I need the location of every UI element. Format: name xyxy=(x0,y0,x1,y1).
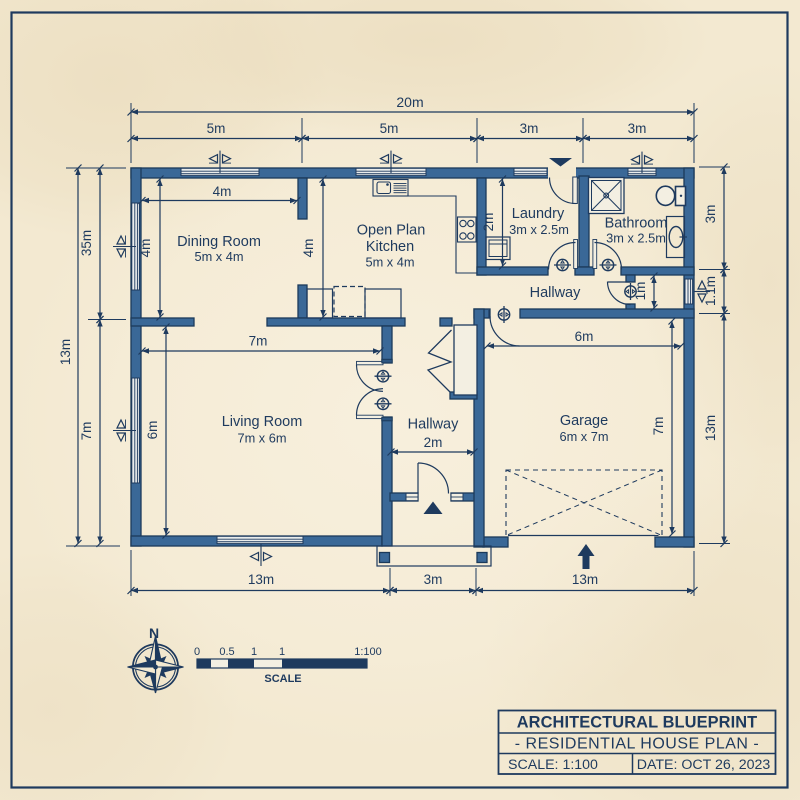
svg-text:DATE: OCT 26, 2023: DATE: OCT 26, 2023 xyxy=(637,757,771,773)
svg-text:3m x 2.5m: 3m x 2.5m xyxy=(509,222,569,237)
svg-text:3m: 3m xyxy=(520,121,539,136)
svg-text:5m x 4m: 5m x 4m xyxy=(365,255,414,270)
svg-text:7m: 7m xyxy=(249,334,268,349)
svg-text:4m: 4m xyxy=(213,184,232,199)
svg-text:4m: 4m xyxy=(301,239,316,258)
svg-text:7m x 6m: 7m x 6m xyxy=(237,431,286,446)
svg-text:7m: 7m xyxy=(651,417,666,436)
svg-text:5m x 4m: 5m x 4m xyxy=(194,249,243,264)
svg-text:6m x 7m: 6m x 7m xyxy=(559,429,608,444)
svg-text:6m: 6m xyxy=(145,421,160,440)
svg-text:3m x 2.5m: 3m x 2.5m xyxy=(606,231,666,246)
svg-text:1:100: 1:100 xyxy=(354,646,382,658)
svg-text:1.1m: 1.1m xyxy=(703,276,718,306)
svg-text:SCALE: SCALE xyxy=(264,673,301,685)
svg-text:2m: 2m xyxy=(481,213,496,232)
svg-text:13m: 13m xyxy=(572,572,598,587)
svg-text:20m: 20m xyxy=(396,94,423,110)
svg-text:3m: 3m xyxy=(424,572,443,587)
svg-text:N: N xyxy=(149,625,159,641)
svg-text:1m: 1m xyxy=(633,282,648,301)
svg-text:Living Room: Living Room xyxy=(222,414,303,430)
svg-text:5m: 5m xyxy=(207,121,226,136)
svg-text:3m: 3m xyxy=(628,121,647,136)
svg-text:2m: 2m xyxy=(424,435,443,450)
svg-text:3m: 3m xyxy=(703,205,718,224)
svg-text:Hallway: Hallway xyxy=(530,285,582,301)
svg-text:4m: 4m xyxy=(138,239,153,258)
svg-text:1: 1 xyxy=(251,646,257,658)
svg-text:0.5: 0.5 xyxy=(219,646,234,658)
svg-text:- RESIDENTIAL HOUSE PLAN -: - RESIDENTIAL HOUSE PLAN - xyxy=(515,736,759,753)
svg-text:5m: 5m xyxy=(380,121,399,136)
svg-text:0: 0 xyxy=(194,646,200,658)
svg-text:1: 1 xyxy=(279,646,285,658)
svg-text:7m: 7m xyxy=(79,422,94,441)
svg-text:6m: 6m xyxy=(575,329,594,344)
svg-text:35m: 35m xyxy=(79,230,94,256)
svg-text:ARCHITECTURAL BLUEPRINT: ARCHITECTURAL BLUEPRINT xyxy=(517,714,758,732)
svg-text:Kitchen: Kitchen xyxy=(366,239,414,255)
svg-text:13m: 13m xyxy=(248,572,274,587)
svg-text:Laundry: Laundry xyxy=(512,206,565,222)
svg-text:SCALE: 1:100: SCALE: 1:100 xyxy=(508,757,598,773)
svg-text:Hallway: Hallway xyxy=(408,417,460,433)
svg-text:Dining Room: Dining Room xyxy=(177,234,261,250)
svg-text:13m: 13m xyxy=(703,415,718,441)
svg-text:Garage: Garage xyxy=(560,413,608,429)
svg-text:13m: 13m xyxy=(58,339,73,365)
svg-text:Open Plan: Open Plan xyxy=(357,223,426,239)
svg-text:Bathroom: Bathroom xyxy=(605,216,668,232)
